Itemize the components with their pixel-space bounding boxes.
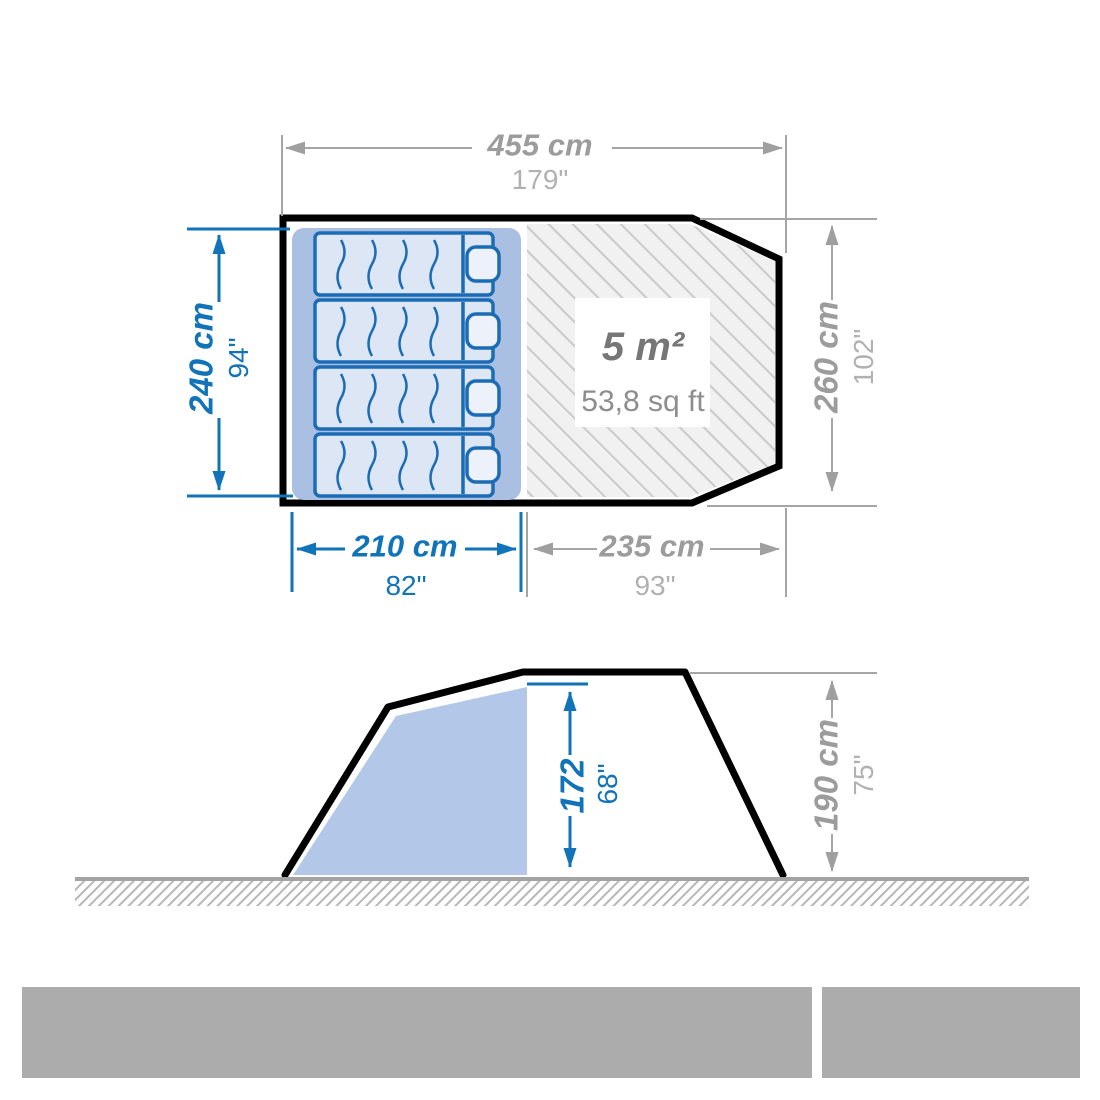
mattress-row-4 bbox=[315, 434, 499, 496]
bedroom-depth-cm-label: 240 cm bbox=[185, 302, 218, 414]
interior-height-cm-label: 172 bbox=[556, 758, 589, 813]
tent-spec-diagram: 455 cm 179" 240 cm 94" 260 cm 102" 210 c… bbox=[0, 0, 1100, 1100]
interior-height-in-label: 68" bbox=[594, 763, 622, 804]
mattress-row-3 bbox=[315, 367, 499, 429]
total-depth-in-label: 102" bbox=[850, 329, 878, 386]
weight-bar: 10,2 kg 22 lbs 7,8 oz bbox=[822, 987, 1080, 1078]
living-area-m2-label: 5 m² bbox=[602, 327, 684, 367]
mattress-row-2 bbox=[315, 300, 499, 362]
bedroom-depth-in-label: 94" bbox=[225, 337, 253, 378]
living-width-cm-label: 235 cm bbox=[599, 531, 704, 562]
exterior-height-in-label: 75" bbox=[850, 754, 878, 795]
living-width-in-label: 93" bbox=[634, 572, 675, 600]
ground bbox=[75, 879, 1029, 906]
bedroom-width-in-label: 82" bbox=[385, 572, 426, 600]
total-width-cm-label: 455 cm bbox=[487, 130, 592, 161]
mattress-row-1 bbox=[315, 233, 499, 295]
exterior-height-cm-label: 190 cm bbox=[810, 719, 843, 831]
living-area-sqft-label: 53,8 sq ft bbox=[581, 387, 704, 417]
total-width-in-label: 179" bbox=[512, 166, 569, 194]
product-name-bar: ARPENAZ 4.1 bbox=[22, 987, 812, 1078]
bedroom-width-cm-label: 210 cm bbox=[352, 531, 457, 562]
side-view-bedroom-fill bbox=[293, 687, 527, 875]
total-depth-cm-label: 260 cm bbox=[810, 301, 843, 413]
